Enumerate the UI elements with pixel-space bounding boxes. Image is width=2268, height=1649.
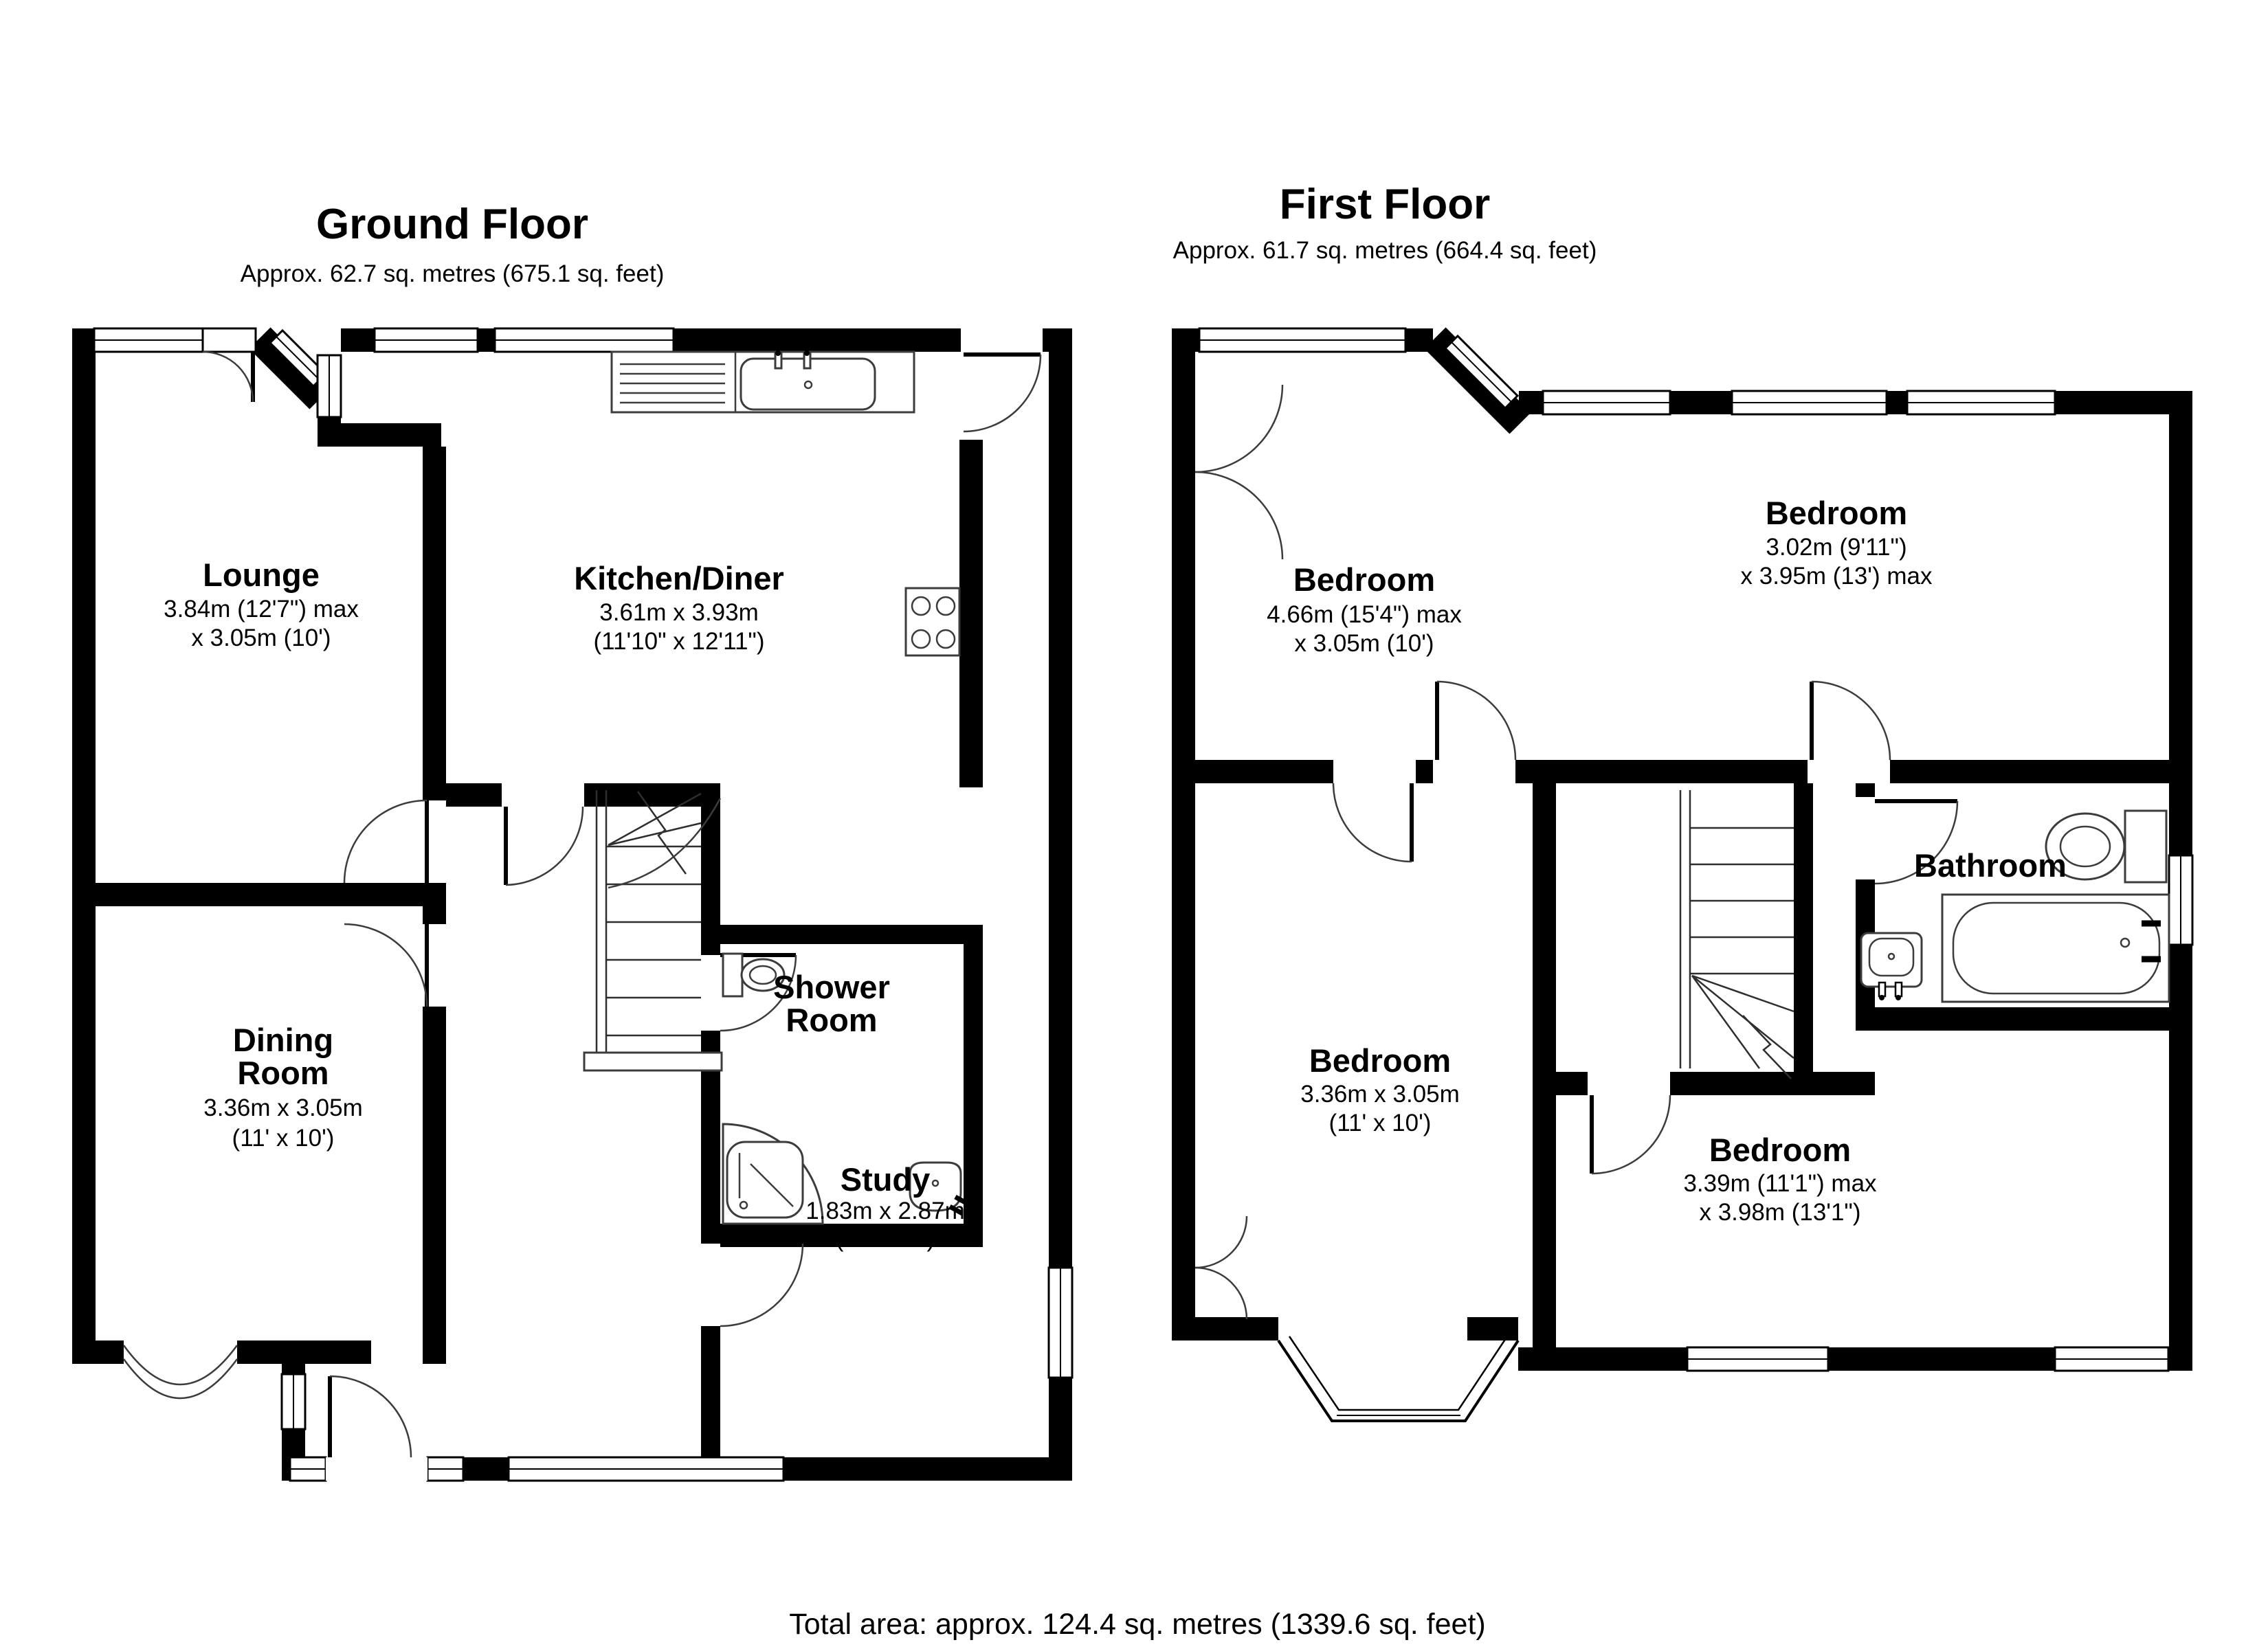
kitchen-sink-counter: [612, 350, 914, 412]
first-floor-subtitle: Approx. 61.7 sq. metres (664.4 sq. feet): [1173, 237, 1597, 264]
kitchen-label: Kitchen/Diner: [574, 560, 784, 596]
lounge-dim2: x 3.05m (10'): [191, 625, 331, 651]
bedroom3-label: Bedroom: [1309, 1042, 1451, 1079]
lounge-dim1: 3.84m (12'7") max: [164, 596, 359, 622]
total-area-text: Total area: approx. 124.4 sq. metres (13…: [789, 1608, 1485, 1641]
shower-room-label-line1: Shower: [773, 969, 890, 1005]
dining-label-line1: Dining: [233, 1022, 333, 1058]
ground-floor-walls: [72, 328, 1072, 1481]
kitchen-dim2: (11'10" x 12'11"): [594, 628, 765, 655]
ground-floor-subtitle: Approx. 62.7 sq. metres (675.1 sq. feet): [241, 260, 665, 287]
bedroom2-dim2: x 3.95m (13') max: [1741, 563, 1933, 590]
first-floor-title: First Floor: [1280, 181, 1491, 228]
bedroom1-dim2: x 3.05m (10'): [1294, 630, 1434, 657]
bedroom1-label: Bedroom: [1293, 561, 1435, 598]
bedroom2-label: Bedroom: [1766, 495, 1907, 531]
ground-floor-plan: Ground Floor Approx. 62.7 sq. metres (67…: [72, 201, 1072, 1481]
ground-floor-title: Ground Floor: [316, 201, 588, 248]
bathroom-bathtub: [1942, 895, 2169, 1002]
study-dim2: (6' x 9'5"): [836, 1225, 935, 1252]
shower-room-label-line2: Room: [786, 1002, 877, 1038]
dining-dim2: (11' x 10'): [232, 1125, 335, 1152]
study-label: Study: [841, 1161, 931, 1198]
kitchen-hob: [906, 588, 959, 655]
bedroom1-dim1: 4.66m (15'4") max: [1267, 601, 1462, 628]
floorplan-svg: Ground Floor Approx. 62.7 sq. metres (67…: [0, 0, 2268, 1649]
first-floor-plan: First Floor Approx. 61.7 sq. metres (664…: [1172, 181, 2192, 1421]
floorplan-canvas: Ground Floor Approx. 62.7 sq. metres (67…: [0, 0, 2268, 1649]
bedroom4-dim2: x 3.98m (13'1"): [1699, 1199, 1860, 1226]
lounge-label: Lounge: [203, 557, 320, 593]
kitchen-dim1: 3.61m x 3.93m: [599, 599, 759, 626]
bedroom4-dim1: 3.39m (11'1") max: [1683, 1170, 1877, 1197]
bedroom3-dim1: 3.36m x 3.05m: [1300, 1081, 1460, 1108]
bedroom2-dim1: 3.02m (9'11"): [1766, 534, 1906, 561]
bedroom4-label: Bedroom: [1709, 1132, 1851, 1168]
dining-label-line2: Room: [237, 1055, 329, 1091]
bathroom-label: Bathroom: [1914, 847, 2067, 884]
bedroom3-dim2: (11' x 10'): [1329, 1110, 1432, 1136]
first-floor-stairs: [1680, 790, 1794, 1079]
study-dim1: 1.83m x 2.87m: [805, 1198, 965, 1224]
dining-dim1: 3.36m x 3.05m: [203, 1095, 363, 1121]
